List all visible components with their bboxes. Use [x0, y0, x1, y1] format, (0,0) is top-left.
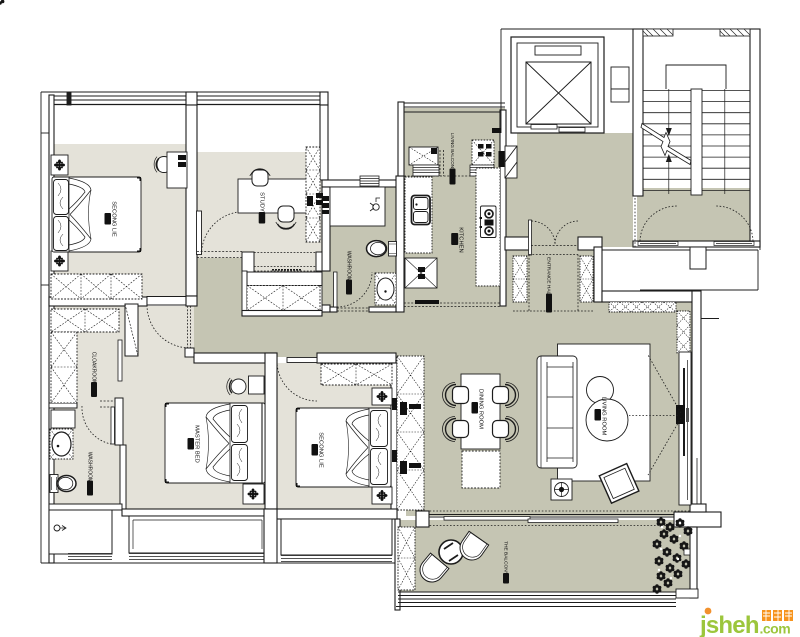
svg-text:STUDY: STUDY [259, 192, 265, 212]
svg-text:SECONG LIE: SECONG LIE [111, 201, 117, 237]
svg-text:ENTRANCE HALL: ENTRANCE HALL [546, 257, 552, 297]
svg-text:LIVING ROOM: LIVING ROOM [601, 397, 607, 436]
svg-text:THE BALCONY: THE BALCONY [503, 541, 509, 576]
svg-text:.com: .com [760, 621, 791, 637]
svg-text:SECONG LIE: SECONG LIE [318, 432, 324, 468]
svg-text:MASTER BED: MASTER BED [194, 425, 200, 463]
svg-text:WASHROOM: WASHROOM [346, 251, 352, 281]
svg-text:KITCHEN: KITCHEN [458, 227, 464, 252]
svg-text:CLOAKROOM: CLOAKROOM [91, 352, 97, 385]
svg-text:LIVING BALCONY: LIVING BALCONY [450, 133, 455, 171]
svg-text:DINING ROOM: DINING ROOM [478, 389, 484, 429]
svg-text:jsheh: jsheh [699, 612, 759, 637]
svg-text:WASHROOM: WASHROOM [87, 452, 93, 482]
